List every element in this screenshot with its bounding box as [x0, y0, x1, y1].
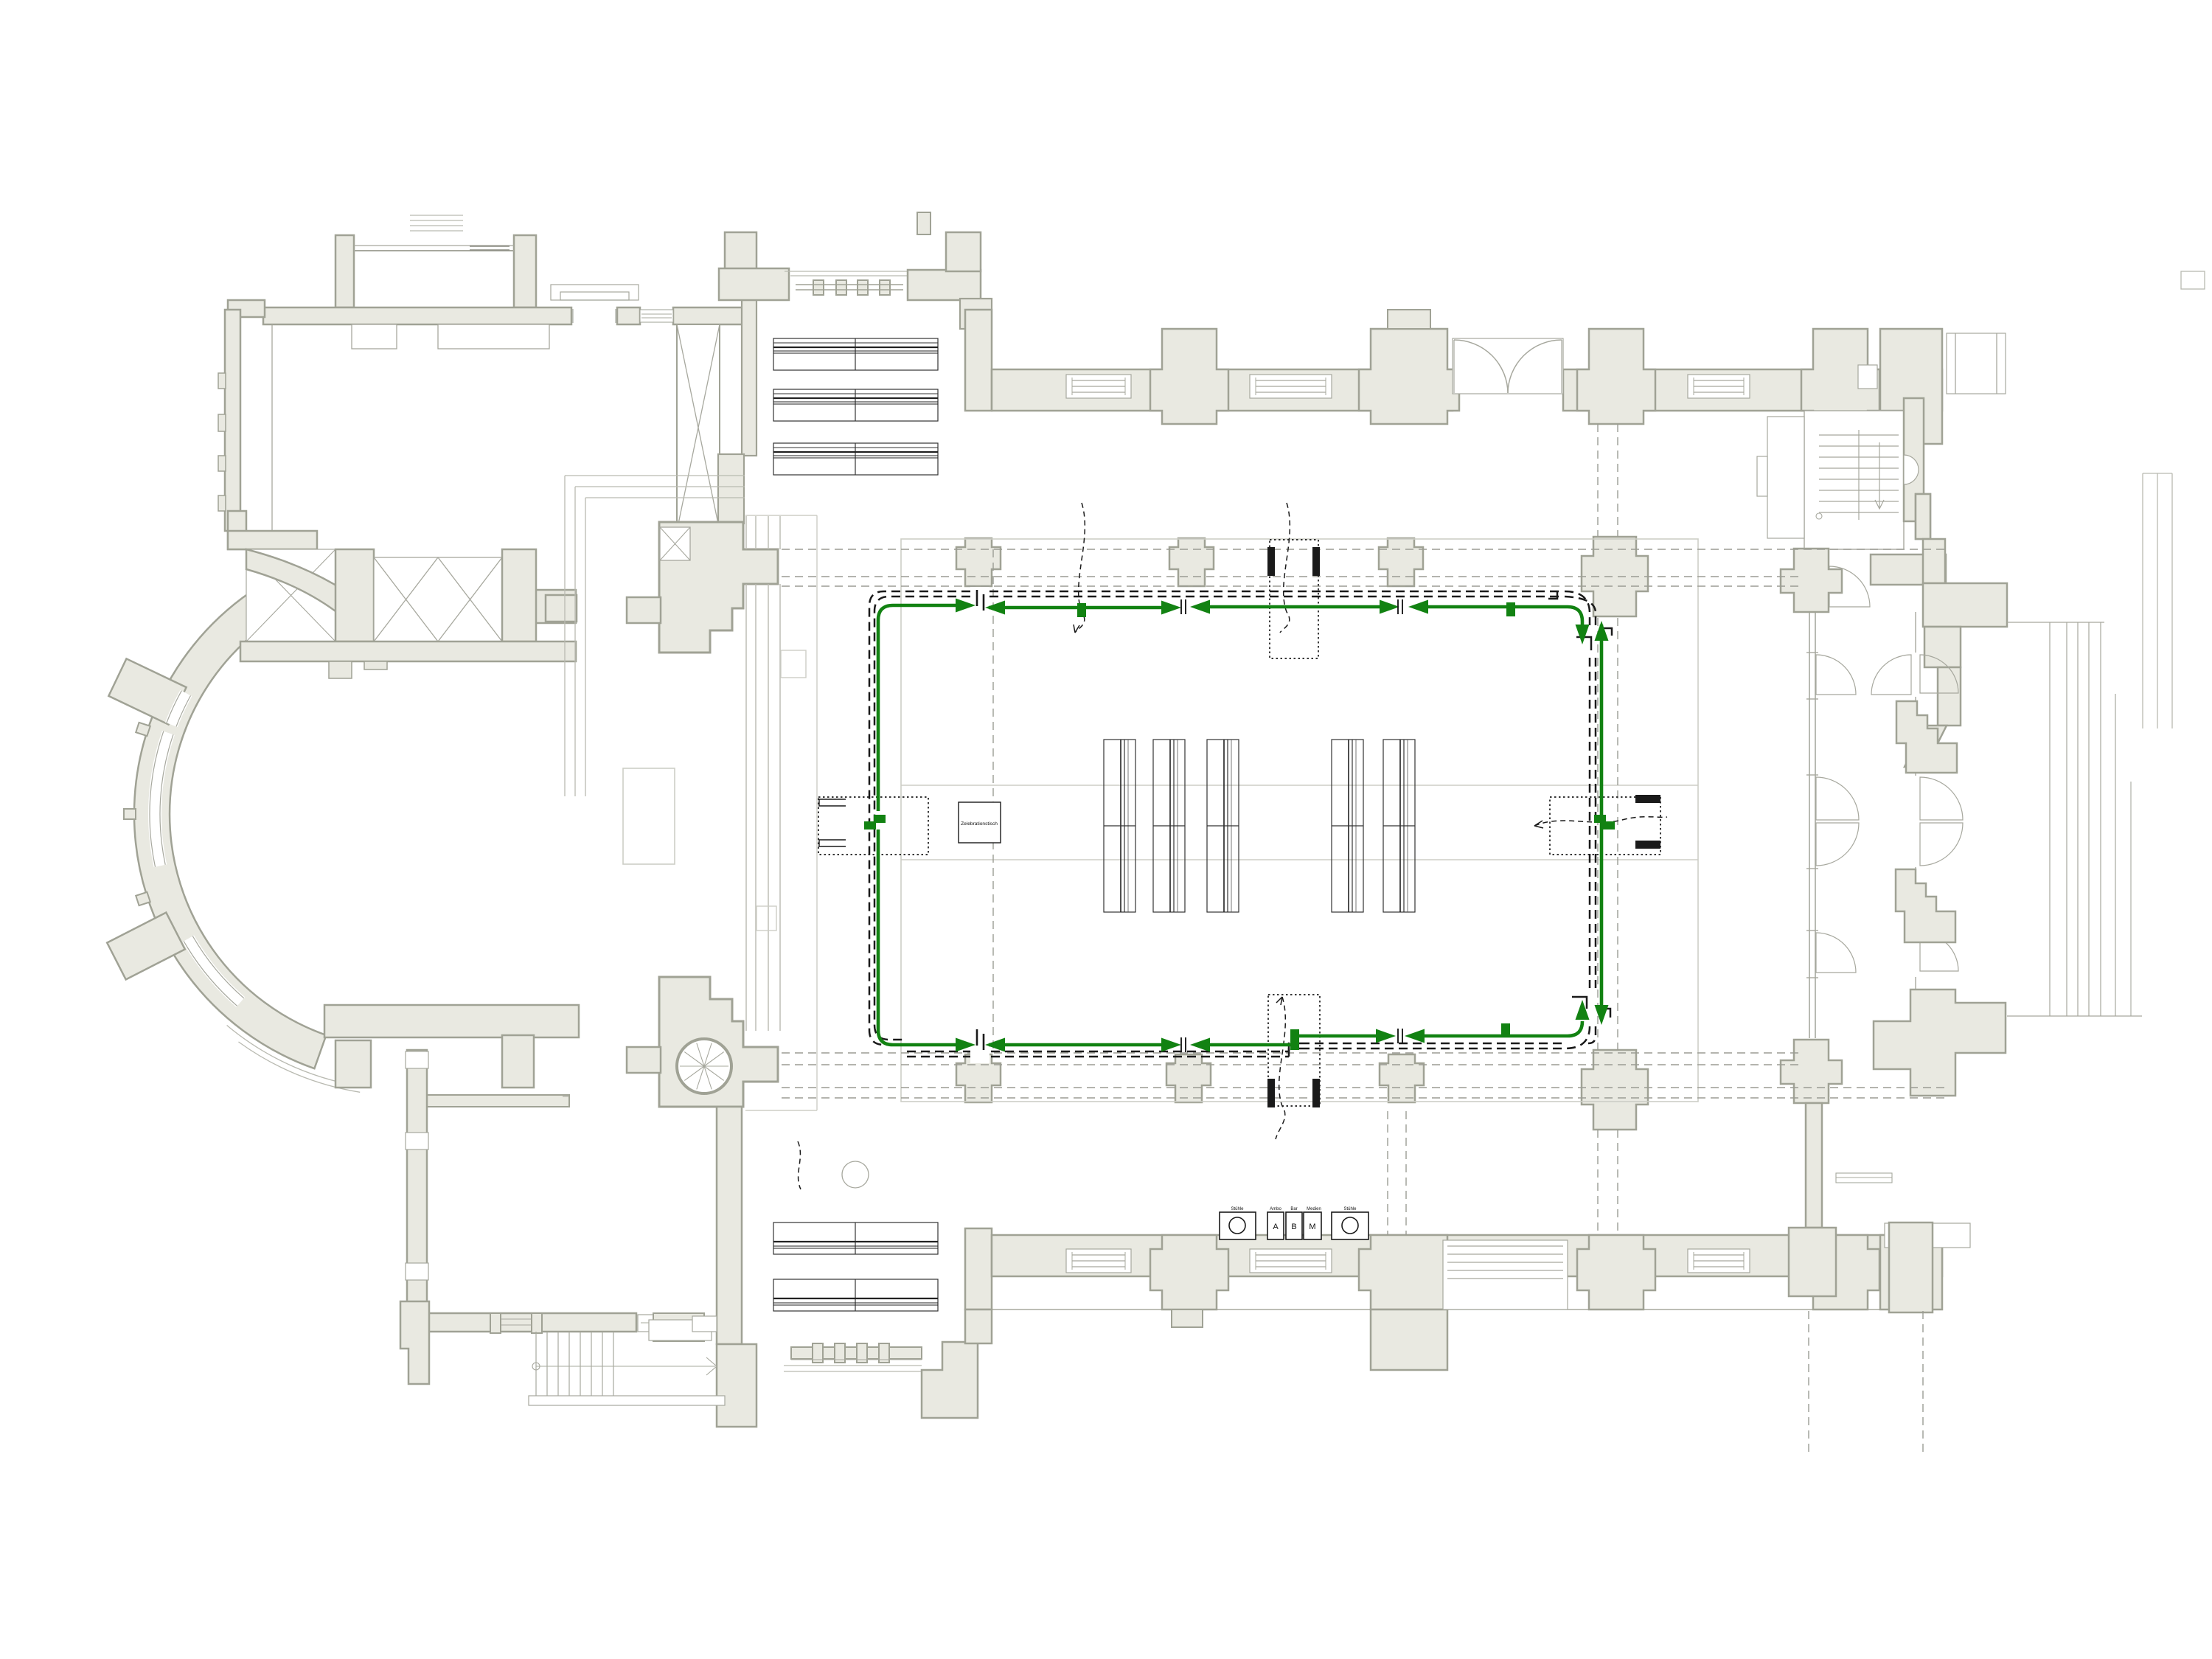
svg-text:A: A [1273, 1222, 1279, 1231]
svg-text:Stühle: Stühle [1231, 1207, 1244, 1211]
svg-text:Bar: Bar [1290, 1207, 1297, 1211]
svg-text:Medien: Medien [1307, 1207, 1321, 1211]
svg-text:Stühle: Stühle [1343, 1207, 1357, 1211]
svg-text:B: B [1291, 1222, 1296, 1231]
svg-text:Zelebrationstisch: Zelebrationstisch [961, 821, 998, 827]
svg-text:Ambo: Ambo [1270, 1207, 1281, 1211]
svg-text:M: M [1309, 1222, 1315, 1231]
